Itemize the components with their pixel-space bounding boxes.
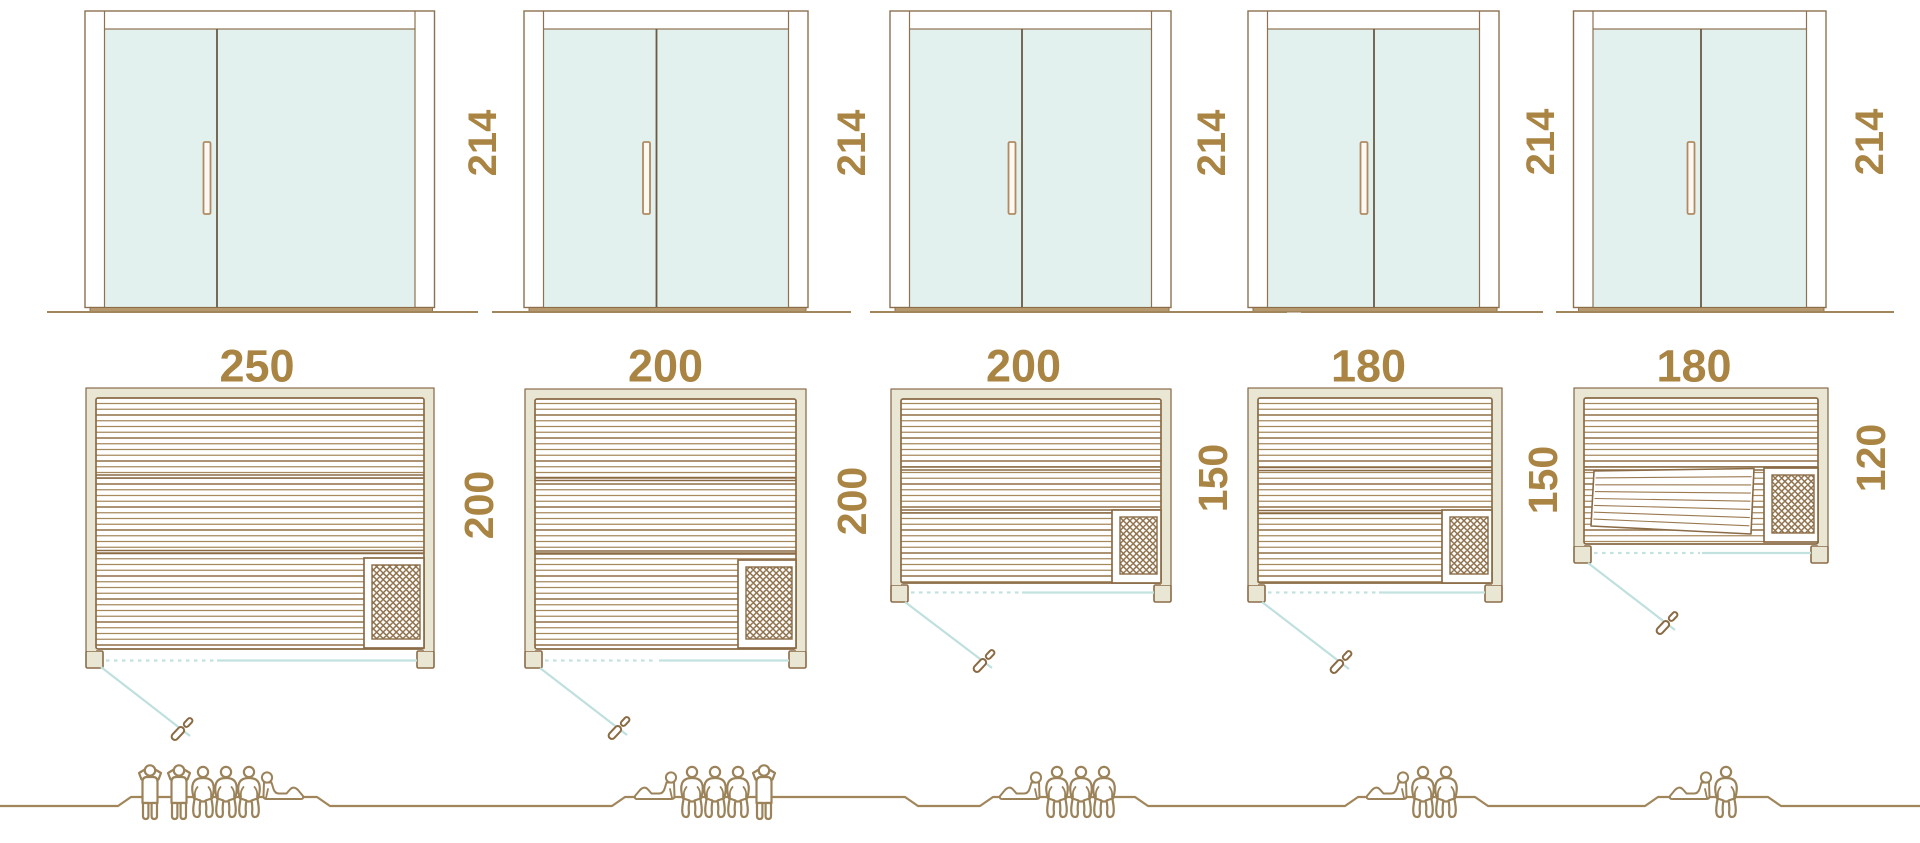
- svg-text:214: 214: [1519, 108, 1563, 175]
- svg-text:200: 200: [829, 467, 875, 535]
- svg-text:200: 200: [628, 341, 703, 392]
- svg-text:214: 214: [830, 109, 874, 176]
- svg-text:200: 200: [986, 341, 1061, 392]
- svg-text:214: 214: [1190, 109, 1234, 176]
- svg-text:180: 180: [1331, 341, 1406, 392]
- svg-text:150: 150: [1520, 446, 1566, 514]
- svg-text:180: 180: [1656, 341, 1731, 392]
- svg-text:150: 150: [1190, 444, 1236, 512]
- svg-text:250: 250: [219, 341, 294, 392]
- svg-text:214: 214: [461, 109, 505, 176]
- svg-text:214: 214: [1848, 108, 1892, 175]
- svg-text:120: 120: [1848, 424, 1894, 492]
- svg-text:200: 200: [456, 471, 502, 539]
